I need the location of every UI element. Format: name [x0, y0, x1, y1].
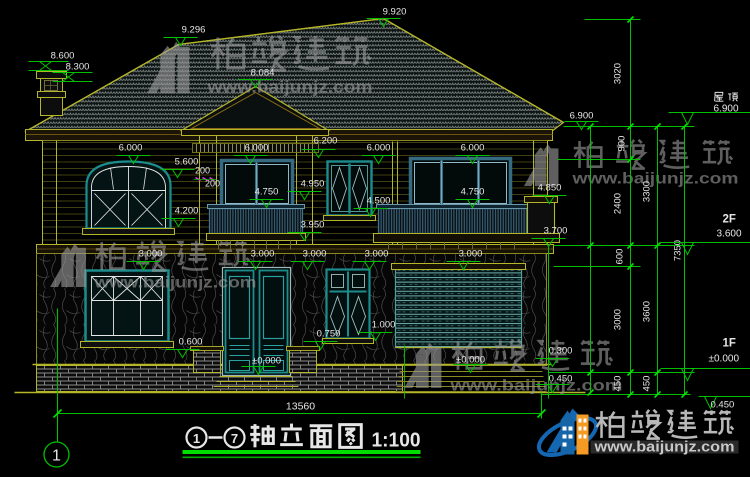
svg-text:6.200: 6.200	[314, 136, 338, 147]
svg-text:0.750: 0.750	[317, 329, 341, 340]
svg-text:0.450: 0.450	[549, 374, 573, 385]
svg-text:6.000: 6.000	[119, 143, 143, 154]
svg-text:0.450: 0.450	[711, 400, 735, 411]
svg-text:8.600: 8.600	[51, 51, 75, 62]
svg-text:www.baijunjz.com: www.baijunjz.com	[449, 378, 622, 395]
svg-text:9.296: 9.296	[182, 25, 206, 36]
svg-text:6.000: 6.000	[461, 143, 485, 154]
svg-text:www.baijunjz.com: www.baijunjz.com	[571, 171, 738, 188]
svg-text:450: 450	[613, 376, 624, 392]
svg-text:±0.000: ±0.000	[709, 354, 740, 365]
svg-text:9.920: 9.920	[383, 7, 407, 18]
svg-text:200: 200	[195, 166, 210, 176]
svg-text:3020: 3020	[613, 63, 624, 84]
svg-text:1.000: 1.000	[372, 320, 396, 331]
svg-text:6.900: 6.900	[570, 111, 594, 122]
svg-text:3300: 3300	[642, 181, 653, 202]
svg-text:8.300: 8.300	[66, 62, 90, 73]
svg-text:www.baijunjz.com: www.baijunjz.com	[593, 440, 734, 456]
svg-text:4.950: 4.950	[301, 179, 325, 190]
svg-text:3.600: 3.600	[717, 229, 742, 240]
svg-text:3.700: 3.700	[544, 226, 568, 237]
svg-text:±0.000: ±0.000	[252, 356, 281, 367]
svg-text:3000: 3000	[613, 309, 624, 330]
svg-text:6.000: 6.000	[245, 143, 269, 154]
svg-text:450: 450	[642, 376, 653, 392]
svg-text:1: 1	[52, 448, 61, 465]
svg-text:1: 1	[193, 431, 200, 446]
svg-text:4.200: 4.200	[175, 206, 199, 217]
svg-text:600: 600	[615, 249, 626, 265]
svg-text:3.000: 3.000	[303, 249, 327, 260]
svg-text:3.000: 3.000	[139, 249, 163, 260]
svg-text:1:100: 1:100	[372, 430, 421, 452]
svg-text:1F: 1F	[723, 338, 736, 350]
svg-text:3.000: 3.000	[459, 249, 483, 260]
svg-text:4.750: 4.750	[255, 187, 279, 198]
svg-text:www.baijunjz.com: www.baijunjz.com	[206, 79, 372, 97]
svg-text:±0.000: ±0.000	[456, 355, 485, 366]
svg-text:4.850: 4.850	[538, 183, 562, 194]
svg-text:0.600: 0.600	[179, 337, 203, 348]
svg-text:6.000: 6.000	[367, 143, 391, 154]
svg-text:3.000: 3.000	[365, 249, 389, 260]
svg-text:13560: 13560	[286, 401, 315, 413]
svg-text:2400: 2400	[613, 193, 624, 214]
svg-text:4.750: 4.750	[461, 187, 485, 198]
svg-text:2F: 2F	[723, 214, 736, 226]
svg-text:8.084: 8.084	[251, 68, 275, 79]
svg-text:3600: 3600	[642, 301, 653, 322]
svg-text:900: 900	[617, 136, 628, 152]
svg-text:www.baijunjz.com: www.baijunjz.com	[93, 275, 256, 292]
svg-text:7: 7	[231, 431, 238, 446]
svg-text:3.950: 3.950	[301, 220, 325, 231]
svg-text:4.500: 4.500	[367, 196, 391, 207]
svg-text:6.900: 6.900	[714, 104, 739, 115]
svg-text:3.000: 3.000	[251, 249, 275, 260]
svg-text:0.300: 0.300	[549, 346, 573, 357]
